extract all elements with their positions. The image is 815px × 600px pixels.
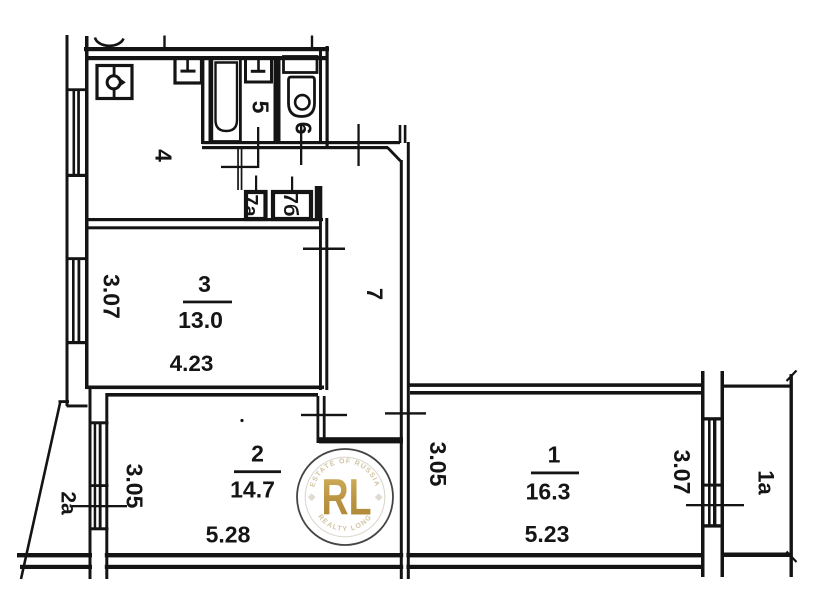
svg-text:1: 1 [548, 442, 561, 468]
svg-text:3.07: 3.07 [99, 274, 125, 319]
svg-text:14.7: 14.7 [230, 477, 275, 503]
svg-text:3.05: 3.05 [122, 464, 148, 509]
svg-text:3.05: 3.05 [425, 442, 451, 487]
svg-text:1a: 1a [754, 470, 779, 495]
svg-text:7a: 7a [239, 194, 261, 217]
svg-text:3.07: 3.07 [669, 450, 695, 495]
svg-text:RL: RL [322, 469, 372, 526]
svg-text:3: 3 [198, 271, 211, 297]
svg-text:16.3: 16.3 [526, 479, 571, 505]
svg-text:5.28: 5.28 [206, 522, 251, 548]
svg-text:5: 5 [248, 101, 274, 114]
svg-text:4.23: 4.23 [170, 351, 214, 376]
svg-text:2a: 2a [57, 491, 80, 515]
svg-text:2: 2 [251, 441, 264, 467]
svg-text:6: 6 [291, 122, 317, 135]
svg-text:7б: 7б [279, 192, 302, 216]
svg-text:7: 7 [362, 288, 387, 300]
svg-text:4: 4 [151, 149, 177, 162]
svg-text:13.0: 13.0 [178, 307, 223, 333]
svg-text:5.23: 5.23 [525, 521, 570, 547]
